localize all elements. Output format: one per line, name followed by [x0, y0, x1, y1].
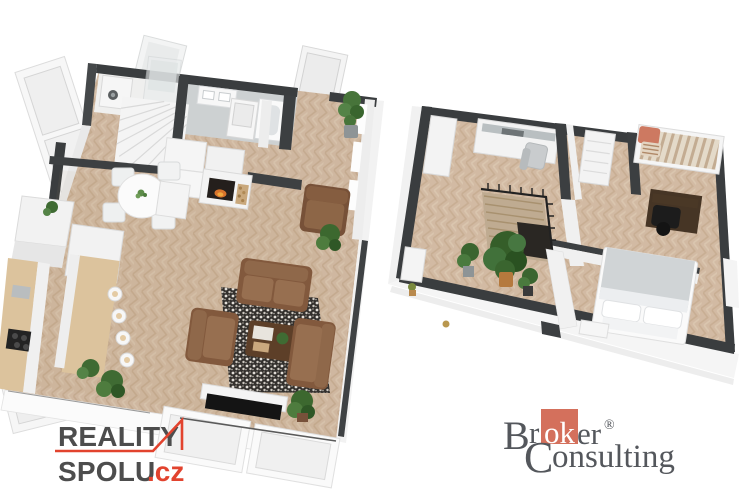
svg-text:REALITY: REALITY [58, 421, 179, 452]
svg-text:onsulting: onsulting [552, 439, 675, 475]
svg-text:.cz: .cz [147, 456, 184, 487]
svg-text:®: ® [604, 418, 615, 433]
svg-text:SPOLU: SPOLU [58, 456, 155, 487]
svg-text:C: C [524, 433, 553, 482]
